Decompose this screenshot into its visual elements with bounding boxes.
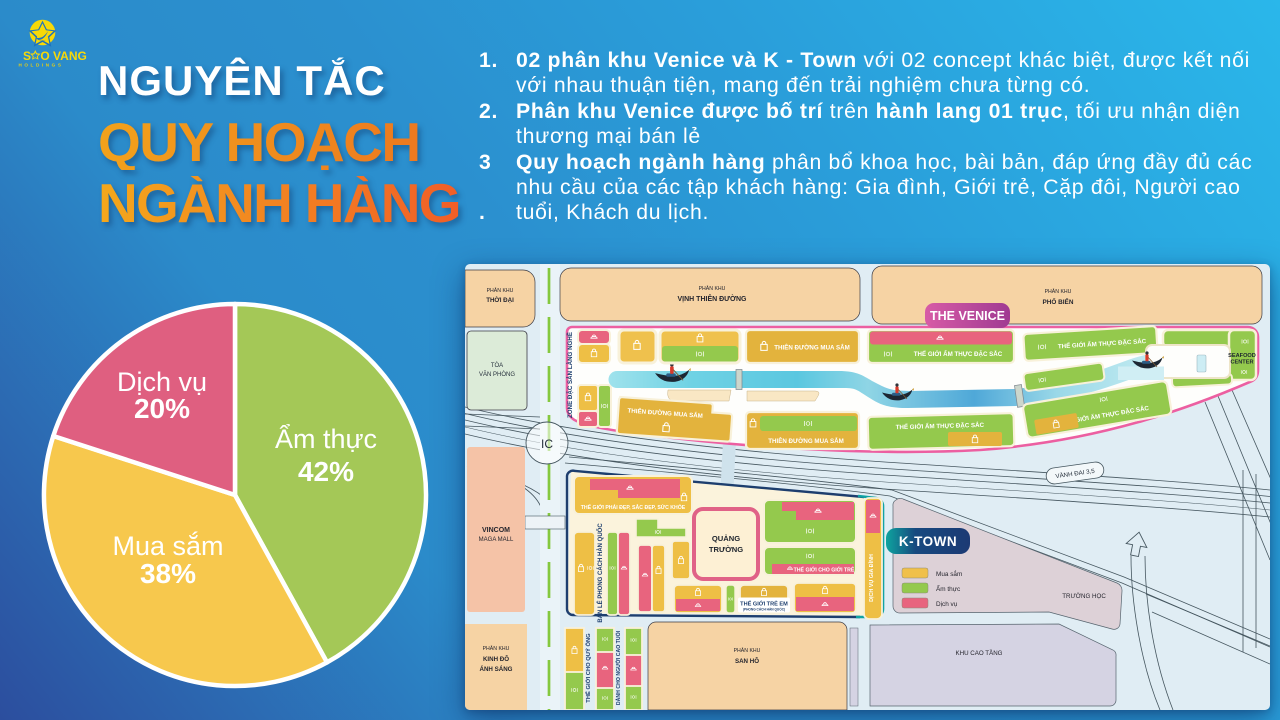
svg-text:KINH ĐÔ: KINH ĐÔ (483, 655, 509, 663)
svg-text:KHU CAO TẦNG: KHU CAO TẦNG (956, 650, 1003, 657)
svg-text:TÒA: TÒA (491, 362, 503, 369)
svg-text:MAGA MALL: MAGA MALL (479, 537, 514, 543)
svg-text:CENTER: CENTER (1231, 360, 1254, 366)
svg-text:PHÂN KHU: PHÂN KHU (483, 645, 510, 652)
svg-text:BÁN LẺ PHONG CÁCH HÀN QUỐC: BÁN LẺ PHONG CÁCH HÀN QUỐC (597, 523, 604, 623)
svg-text:20%: 20% (134, 393, 190, 424)
svg-text:(PHONG CÁCH HÀN QUỐC): (PHONG CÁCH HÀN QUỐC) (743, 607, 785, 612)
svg-text:TRƯỜNG HỌC: TRƯỜNG HỌC (1062, 593, 1106, 600)
svg-text:THỜI ĐẠI: THỜI ĐẠI (486, 296, 514, 304)
svg-text:Ẩm thực: Ẩm thực (275, 423, 377, 454)
svg-text:VỊNH THIÊN ĐƯỜNG: VỊNH THIÊN ĐƯỜNG (678, 294, 748, 303)
svg-text:THE VENICE: THE VENICE (930, 309, 1005, 323)
svg-text:THẾ GIỚI CHO QUÝ ÔNG: THẾ GIỚI CHO QUÝ ÔNG (584, 633, 592, 703)
svg-text:Mua sắm: Mua sắm (112, 530, 223, 561)
svg-text:THIÊN ĐƯỜNG MUA SẮM: THIÊN ĐƯỜNG MUA SẮM (774, 344, 850, 352)
svg-text:THẾ GIỚI CHO GIỚI TRẺ: THẾ GIỚI CHO GIỚI TRẺ (794, 566, 855, 574)
svg-text:O VANG: O VANG (40, 49, 86, 63)
svg-text:K-TOWN: K-TOWN (899, 534, 957, 549)
svg-text:VĂN PHÒNG: VĂN PHÒNG (479, 371, 515, 378)
svg-text:Mua sắm: Mua sắm (936, 569, 962, 578)
svg-text:THẾ GIỚI ẨM THỰC ĐẶC SẮC: THẾ GIỚI ẨM THỰC ĐẶC SẮC (914, 350, 1003, 358)
svg-text:SEAFOOD: SEAFOOD (1228, 353, 1256, 359)
svg-text:PHÂN KHU: PHÂN KHU (734, 647, 761, 654)
svg-text:S: S (23, 49, 31, 63)
svg-text:38%: 38% (140, 558, 196, 589)
svg-text:SAN HÔ: SAN HÔ (735, 657, 759, 665)
svg-text:DÀNH CHO NGƯỜI CAO TUỔI: DÀNH CHO NGƯỜI CAO TUỔI (614, 630, 622, 705)
svg-text:PHÂN KHU: PHÂN KHU (1045, 288, 1072, 295)
svg-text:Dịch vụ: Dịch vụ (936, 601, 958, 608)
svg-text:TRƯỜNG: TRƯỜNG (709, 545, 743, 554)
svg-text:PHÂN KHU: PHÂN KHU (487, 287, 514, 294)
svg-text:ZONE ĐẶC SẢN LÀNG NGHỀ: ZONE ĐẶC SẢN LÀNG NGHỀ (567, 332, 574, 418)
svg-text:DỊCH VỤ GIA ĐÌNH: DỊCH VỤ GIA ĐÌNH (867, 554, 875, 602)
svg-text:ÁNH SÁNG: ÁNH SÁNG (479, 666, 512, 673)
svg-text:IC: IC (541, 437, 553, 451)
svg-text:THẾ GIỚI PHÁI ĐẸP, SẮC ĐẸP, SỨ: THẾ GIỚI PHÁI ĐẸP, SẮC ĐẸP, SỨC KHỎE (581, 503, 686, 511)
svg-text:HOLDINGS: HOLDINGS (18, 63, 63, 68)
svg-text:Ẩm thực: Ẩm thực (936, 584, 961, 593)
svg-text:VINCOM: VINCOM (482, 527, 510, 534)
svg-text:QUẢNG: QUẢNG (712, 534, 740, 543)
svg-text:THẾ GIỚI TRẺ EM: THẾ GIỚI TRẺ EM (740, 600, 788, 608)
svg-text:42%: 42% (298, 456, 354, 487)
svg-text:THIÊN ĐƯỜNG MUA SẮM: THIÊN ĐƯỜNG MUA SẮM (768, 437, 844, 445)
svg-text:PHÂN KHU: PHÂN KHU (699, 285, 726, 292)
